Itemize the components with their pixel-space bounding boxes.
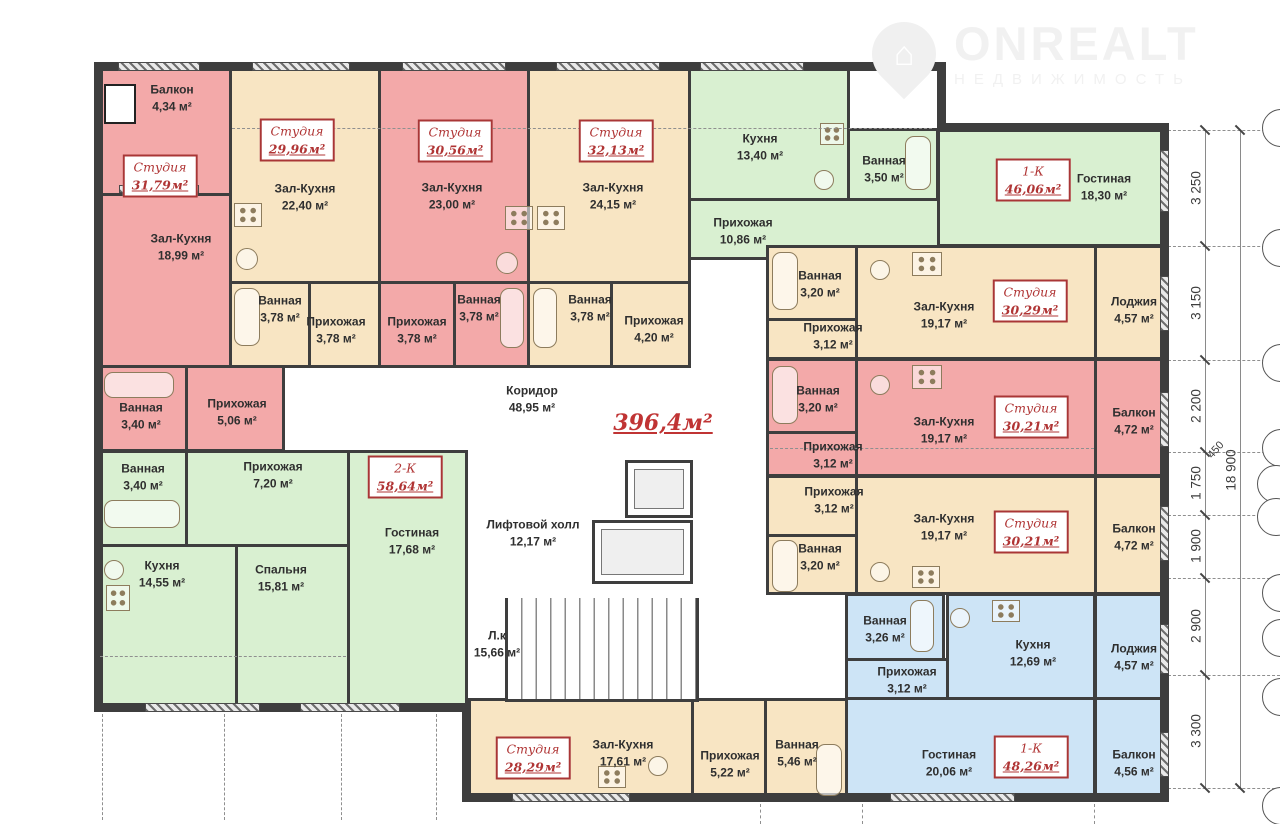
room-name: Ванная bbox=[568, 292, 612, 309]
room-area: 5,06 м² bbox=[207, 413, 266, 430]
room-area: 3,78 м² bbox=[258, 310, 302, 327]
sink-icon bbox=[950, 608, 970, 628]
grid-bubble-icon bbox=[1262, 429, 1280, 467]
room-name: Балкон bbox=[1112, 747, 1155, 764]
room-label: Гостиная17,68 м² bbox=[385, 525, 439, 560]
unit-area: 31,79м² bbox=[132, 176, 189, 194]
room-area: 3,50 м² bbox=[862, 170, 906, 187]
grid-line bbox=[1168, 578, 1280, 579]
room-area: 15,81 м² bbox=[255, 579, 307, 596]
room-name: Зал-Кухня bbox=[151, 231, 212, 248]
room-name: Зал-Кухня bbox=[593, 737, 654, 754]
room-name: Прихожая bbox=[243, 459, 302, 476]
logo-subtitle: НЕДВИЖИМОСТЬ bbox=[954, 71, 1199, 88]
stairs-icon bbox=[505, 598, 699, 702]
room-label: Прихожая3,78 м² bbox=[306, 314, 365, 349]
room-label: Коридор48,95 м² bbox=[506, 383, 558, 418]
unit-type: 1-К bbox=[1003, 740, 1060, 758]
room-name: Гостиная bbox=[922, 747, 976, 764]
room-name: Зал-Кухня bbox=[275, 181, 336, 198]
logo-brand: ONREALT bbox=[954, 20, 1199, 67]
window-icon bbox=[252, 62, 350, 71]
room-label: Зал-Кухня18,99 м² bbox=[151, 231, 212, 266]
room-area: 19,17 м² bbox=[914, 316, 975, 333]
room-label: Зал-Кухня19,17 м² bbox=[914, 299, 975, 334]
grid-line bbox=[436, 714, 437, 820]
room-area: 19,17 м² bbox=[914, 431, 975, 448]
room-area: 5,22 м² bbox=[700, 765, 759, 782]
room-name: Прихожая bbox=[803, 439, 862, 456]
room-label: Балкон4,72 м² bbox=[1112, 405, 1155, 440]
dimension-label: 3 300 bbox=[1189, 714, 1204, 748]
grid-bubble-icon bbox=[1262, 787, 1280, 824]
grid-line bbox=[341, 714, 342, 820]
grid-bubble-icon bbox=[1262, 574, 1280, 612]
stove-icon bbox=[537, 206, 565, 230]
room-name: Лоджия bbox=[1111, 294, 1157, 311]
room-name: Гостиная bbox=[1077, 171, 1131, 188]
room-name: Кухня bbox=[737, 131, 783, 148]
unit-label: 1-К48,26м² bbox=[994, 736, 1069, 779]
unit-area: 30,21м² bbox=[1003, 417, 1060, 435]
room-label: Ванная3,40 м² bbox=[119, 400, 163, 435]
elevator-car-icon bbox=[601, 529, 684, 575]
unit-area: 30,29м² bbox=[1002, 301, 1059, 319]
room-label: Прихожая3,12 м² bbox=[804, 484, 863, 519]
stove-icon bbox=[820, 123, 844, 145]
bathtub-icon bbox=[816, 744, 842, 796]
unit-label: Студия30,29м² bbox=[993, 280, 1068, 323]
bathtub-icon bbox=[910, 600, 934, 652]
room-name: Балкон bbox=[150, 82, 193, 99]
wall-step-top-right bbox=[937, 123, 1168, 132]
room-name: Гостиная bbox=[385, 525, 439, 542]
room-area: 10,86 м² bbox=[713, 232, 772, 249]
room-name: Коридор bbox=[506, 383, 558, 400]
unit-type: Студия bbox=[269, 123, 326, 141]
dimension-label: 1 900 bbox=[1189, 529, 1204, 563]
unit-label: Студия30,21м² bbox=[994, 396, 1069, 439]
room-label: Лоджия4,57 м² bbox=[1111, 294, 1157, 329]
elevator-icon bbox=[592, 520, 693, 584]
room-name: Балкон bbox=[1112, 405, 1155, 422]
room-label: Балкон4,72 м² bbox=[1112, 521, 1155, 556]
unit-area: 48,26м² bbox=[1003, 757, 1060, 775]
room-area: 17,61 м² bbox=[593, 754, 654, 771]
unit-label: Студия30,21м² bbox=[994, 511, 1069, 554]
window-icon bbox=[118, 62, 200, 71]
unit-area: 29,96м² bbox=[269, 140, 326, 158]
sink-icon bbox=[814, 170, 834, 190]
room-name: Ванная bbox=[798, 268, 842, 285]
room-name: Зал-Кухня bbox=[914, 299, 975, 316]
window-icon bbox=[512, 793, 630, 802]
room-name: Л.к bbox=[474, 628, 520, 645]
bathtub-icon bbox=[104, 372, 174, 398]
room-area: 3,20 м² bbox=[798, 558, 842, 575]
bathtub-icon bbox=[772, 540, 798, 592]
room-label: Лифтовой холл12,17 м² bbox=[486, 517, 579, 552]
room-label: Прихожая7,20 м² bbox=[243, 459, 302, 494]
unit-label: Студия28,29м² bbox=[496, 737, 571, 780]
unit-area: 58,64м² bbox=[377, 477, 434, 495]
room-label: Балкон4,56 м² bbox=[1112, 747, 1155, 782]
unit-area: 30,21м² bbox=[1003, 532, 1060, 550]
room-area: 3,12 м² bbox=[803, 337, 862, 354]
room-area: 18,99 м² bbox=[151, 248, 212, 265]
room-label: Прихожая3,12 м² bbox=[803, 320, 862, 355]
sink-icon bbox=[236, 248, 258, 270]
window-icon bbox=[300, 703, 400, 712]
room-name: Ванная bbox=[775, 737, 819, 754]
room-area: 7,20 м² bbox=[243, 476, 302, 493]
map-pin-house-icon: ⌂ bbox=[859, 9, 950, 100]
room-name: Прихожая bbox=[877, 664, 936, 681]
room-name: Лифтовой холл bbox=[486, 517, 579, 534]
room-area: 4,20 м² bbox=[624, 330, 683, 347]
room-label: Зал-Кухня19,17 м² bbox=[914, 511, 975, 546]
window-icon bbox=[1160, 624, 1169, 674]
room-livingkitchen-1 bbox=[98, 193, 232, 368]
unit-type: Студия bbox=[427, 124, 484, 142]
room-area: 12,69 м² bbox=[1010, 654, 1056, 671]
room-name: Спальня bbox=[255, 562, 307, 579]
room-name: Прихожая bbox=[804, 484, 863, 501]
sink-icon bbox=[496, 252, 518, 274]
room-name: Зал-Кухня bbox=[914, 414, 975, 431]
room-name: Ванная bbox=[798, 541, 842, 558]
grid-bubble-icon bbox=[1262, 229, 1280, 267]
bathtub-icon bbox=[533, 288, 557, 348]
grid-line bbox=[100, 656, 346, 657]
wall-top bbox=[94, 62, 946, 71]
sink-icon bbox=[870, 562, 890, 582]
room-label: Ванная3,50 м² bbox=[862, 153, 906, 188]
room-area: 20,06 м² bbox=[922, 764, 976, 781]
bathtub-icon bbox=[772, 366, 798, 424]
room-label: Прихожая5,22 м² bbox=[700, 748, 759, 783]
grid-bubble-icon bbox=[1257, 498, 1280, 536]
unit-label: 2-К58,64м² bbox=[368, 456, 443, 499]
unit-label: Студия29,96м² bbox=[260, 119, 335, 162]
room-label: Прихожая3,78 м² bbox=[387, 314, 446, 349]
room-area: 4,57 м² bbox=[1111, 658, 1157, 675]
shaft-box bbox=[104, 84, 136, 124]
room-label: Л.к15,66 м² bbox=[474, 628, 520, 663]
room-name: Ванная bbox=[119, 400, 163, 417]
room-area: 3,12 м² bbox=[804, 501, 863, 518]
room-name: Ванная bbox=[796, 383, 840, 400]
stove-icon bbox=[912, 252, 942, 276]
unit-type: Студия bbox=[1003, 515, 1060, 533]
room-area: 17,68 м² bbox=[385, 542, 439, 559]
unit-type: Студия bbox=[505, 741, 562, 759]
room-label: Ванная3,78 м² bbox=[258, 293, 302, 328]
bathtub-icon bbox=[234, 288, 260, 346]
sink-icon bbox=[870, 375, 890, 395]
room-label: Гостиная20,06 м² bbox=[922, 747, 976, 782]
room-name: Прихожая bbox=[803, 320, 862, 337]
dimension-label: 3 250 bbox=[1189, 171, 1204, 205]
room-area: 3,20 м² bbox=[798, 285, 842, 302]
room-area: 3,40 м² bbox=[119, 417, 163, 434]
stove-icon bbox=[912, 365, 942, 389]
unit-label: Студия31,79м² bbox=[123, 155, 198, 198]
bathtub-icon bbox=[772, 252, 798, 310]
grid-bubble-icon bbox=[1262, 109, 1280, 147]
floor-plan: Балкон4,34 м² Зал-Кухня18,99 м² Ванная3,… bbox=[0, 0, 1280, 824]
window-icon bbox=[1160, 506, 1169, 561]
bathtub-icon bbox=[104, 500, 180, 528]
room-label: Зал-Кухня24,15 м² bbox=[583, 180, 644, 215]
room-label: Кухня14,55 м² bbox=[139, 558, 185, 593]
stove-icon bbox=[234, 203, 262, 227]
room-name: Прихожая bbox=[306, 314, 365, 331]
room-area: 3,12 м² bbox=[803, 456, 862, 473]
dimension-label: 1 750 bbox=[1189, 466, 1204, 500]
room-label: Кухня13,40 м² bbox=[737, 131, 783, 166]
room-area: 4,56 м² bbox=[1112, 764, 1155, 781]
window-icon bbox=[1160, 392, 1169, 447]
grid-bubble-icon bbox=[1262, 619, 1280, 657]
room-name: Прихожая bbox=[624, 313, 683, 330]
room-name: Ванная bbox=[258, 293, 302, 310]
room-label: Прихожая10,86 м² bbox=[713, 215, 772, 250]
grid-bubble-icon bbox=[1262, 344, 1280, 382]
room-name: Прихожая bbox=[700, 748, 759, 765]
room-label: Прихожая4,20 м² bbox=[624, 313, 683, 348]
room-label: Ванная3,78 м² bbox=[568, 292, 612, 327]
room-area: 3,12 м² bbox=[877, 681, 936, 698]
room-area: 4,34 м² bbox=[150, 99, 193, 116]
logo-text: ONREALT НЕДВИЖИМОСТЬ bbox=[954, 20, 1199, 88]
room-label: Спальня15,81 м² bbox=[255, 562, 307, 597]
room-area: 3,26 м² bbox=[863, 630, 907, 647]
grid-line bbox=[1168, 675, 1280, 676]
room-area: 4,57 м² bbox=[1111, 311, 1157, 328]
room-name: Ванная bbox=[863, 613, 907, 630]
grid-line bbox=[224, 714, 225, 820]
grid-bubble-icon bbox=[1262, 678, 1280, 716]
room-label: Прихожая5,06 м² bbox=[207, 396, 266, 431]
room-area: 5,46 м² bbox=[775, 754, 819, 771]
room-livingkitchen-4 bbox=[527, 66, 691, 284]
window-icon bbox=[1160, 150, 1169, 212]
room-area: 24,15 м² bbox=[583, 197, 644, 214]
elevator-icon bbox=[625, 460, 693, 518]
sink-icon bbox=[104, 560, 124, 580]
unit-type: 2-К bbox=[377, 460, 434, 478]
window-icon bbox=[890, 793, 1015, 802]
room-name: Ванная bbox=[862, 153, 906, 170]
room-area: 3,40 м² bbox=[121, 478, 165, 495]
room-label: Ванная5,46 м² bbox=[775, 737, 819, 772]
total-area-label: 396,4м² bbox=[613, 410, 712, 436]
room-label: Гостиная18,30 м² bbox=[1077, 171, 1131, 206]
grid-line bbox=[862, 804, 863, 824]
room-label: Зал-Кухня19,17 м² bbox=[914, 414, 975, 449]
room-area: 3,78 м² bbox=[387, 331, 446, 348]
grid-line bbox=[1168, 788, 1280, 789]
room-label: Прихожая3,12 м² bbox=[803, 439, 862, 474]
room-label: Ванная3,20 м² bbox=[798, 541, 842, 576]
dimension-label: 3 150 bbox=[1189, 286, 1204, 320]
window-icon bbox=[1160, 276, 1169, 331]
room-label: Ванная3,26 м² bbox=[863, 613, 907, 648]
window-icon bbox=[1160, 732, 1169, 777]
grid-line bbox=[102, 714, 103, 820]
room-name: Лоджия bbox=[1111, 641, 1157, 658]
room-name: Балкон bbox=[1112, 521, 1155, 538]
grid-line bbox=[760, 804, 761, 824]
unit-type: Студия bbox=[588, 124, 645, 142]
bathtub-icon bbox=[500, 288, 524, 348]
room-label: Прихожая3,12 м² bbox=[877, 664, 936, 699]
unit-type: Студия bbox=[1002, 284, 1059, 302]
room-area: 4,72 м² bbox=[1112, 422, 1155, 439]
wall-right bbox=[1160, 123, 1169, 802]
dimension-line bbox=[1205, 130, 1206, 788]
wall-step-bottom bbox=[462, 703, 471, 802]
room-area: 23,00 м² bbox=[422, 197, 483, 214]
room-name: Зал-Кухня bbox=[422, 180, 483, 197]
unit-label: Студия30,56м² bbox=[418, 120, 493, 163]
bathtub-icon bbox=[905, 136, 931, 190]
room-label: Ванная3,78 м² bbox=[457, 292, 501, 327]
unit-area: 30,56м² bbox=[427, 141, 484, 159]
room-name: Кухня bbox=[1010, 637, 1056, 654]
room-name: Кухня bbox=[139, 558, 185, 575]
unit-label: 1-К46,06м² bbox=[996, 159, 1071, 202]
unit-label: Студия32,13м² bbox=[579, 120, 654, 163]
room-name: Ванная bbox=[457, 292, 501, 309]
room-area: 13,40 м² bbox=[737, 148, 783, 165]
elevator-car-icon bbox=[634, 469, 684, 509]
room-name: Прихожая bbox=[387, 314, 446, 331]
window-icon bbox=[145, 703, 260, 712]
room-label: Ванная3,20 м² bbox=[798, 268, 842, 303]
room-name: Ванная bbox=[121, 461, 165, 478]
room-label: Лоджия4,57 м² bbox=[1111, 641, 1157, 676]
stove-icon bbox=[912, 566, 940, 588]
room-label: Зал-Кухня23,00 м² bbox=[422, 180, 483, 215]
stove-icon bbox=[992, 600, 1020, 622]
stove-icon bbox=[505, 206, 533, 230]
unit-type: Студия bbox=[132, 159, 189, 177]
room-label: Зал-Кухня17,61 м² bbox=[593, 737, 654, 772]
grid-line bbox=[1094, 804, 1095, 824]
room-area: 15,66 м² bbox=[474, 645, 520, 662]
room-area: 4,72 м² bbox=[1112, 538, 1155, 555]
room-label: Кухня12,69 м² bbox=[1010, 637, 1056, 672]
unit-type: Студия bbox=[1003, 400, 1060, 418]
sink-icon bbox=[870, 260, 890, 280]
room-area: 18,30 м² bbox=[1077, 188, 1131, 205]
room-area: 3,78 м² bbox=[306, 331, 365, 348]
stove-icon bbox=[106, 585, 130, 611]
room-label: Балкон4,34 м² bbox=[150, 82, 193, 117]
dimension-overall-label: 18 900 bbox=[1224, 449, 1239, 490]
room-name: Зал-Кухня bbox=[583, 180, 644, 197]
window-icon bbox=[556, 62, 660, 71]
room-name: Зал-Кухня bbox=[914, 511, 975, 528]
room-area: 22,40 м² bbox=[275, 198, 336, 215]
house-glyph-icon: ⌂ bbox=[894, 37, 915, 71]
room-area: 19,17 м² bbox=[914, 528, 975, 545]
room-area: 3,78 м² bbox=[457, 309, 501, 326]
dimension-label: 2 900 bbox=[1189, 609, 1204, 643]
room-area: 14,55 м² bbox=[139, 575, 185, 592]
unit-area: 46,06м² bbox=[1005, 180, 1062, 198]
dimension-line bbox=[1240, 130, 1241, 788]
room-name: Прихожая bbox=[207, 396, 266, 413]
dimension-label: 2 200 bbox=[1189, 389, 1204, 423]
window-icon bbox=[402, 62, 506, 71]
room-label: Ванная3,20 м² bbox=[796, 383, 840, 418]
room-area: 12,17 м² bbox=[486, 534, 579, 551]
room-area: 48,95 м² bbox=[506, 400, 558, 417]
onrealt-logo: ⌂ ONREALT НЕДВИЖИМОСТЬ bbox=[872, 20, 1199, 88]
room-label: Зал-Кухня22,40 м² bbox=[275, 181, 336, 216]
window-icon bbox=[700, 62, 804, 71]
room-name: Прихожая bbox=[713, 215, 772, 232]
room-area: 3,78 м² bbox=[568, 309, 612, 326]
wall-left bbox=[94, 62, 103, 712]
unit-area: 28,29м² bbox=[505, 758, 562, 776]
room-area: 3,20 м² bbox=[796, 400, 840, 417]
room-label: Ванная3,40 м² bbox=[121, 461, 165, 496]
unit-area: 32,13м² bbox=[588, 141, 645, 159]
unit-type: 1-К bbox=[1005, 163, 1062, 181]
